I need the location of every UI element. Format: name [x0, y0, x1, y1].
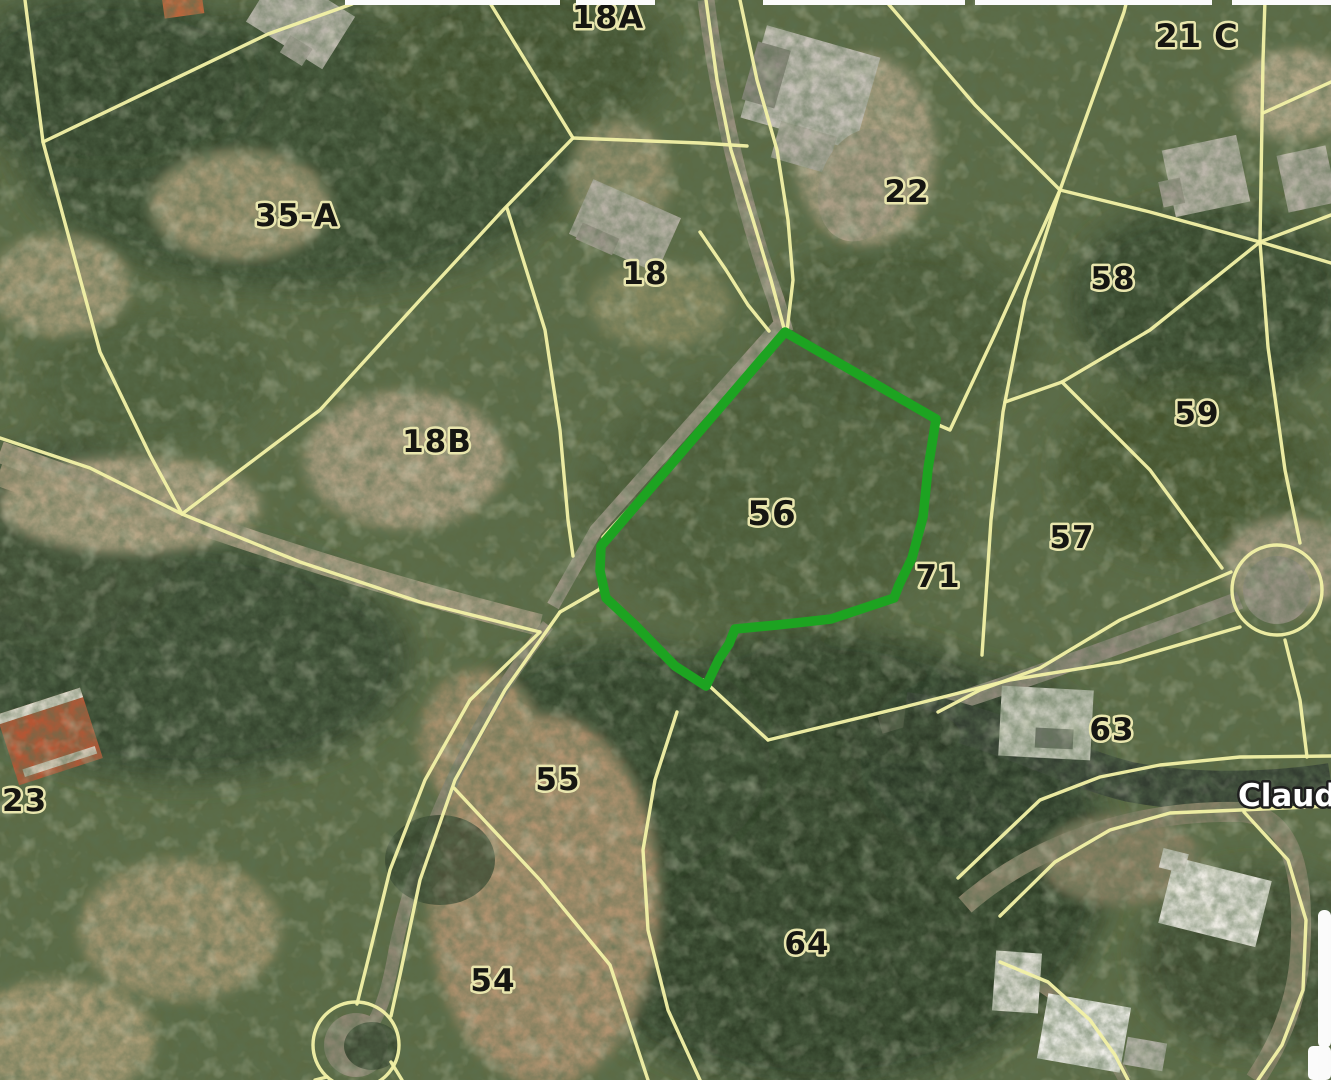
map-viewport[interactable]: 18A21 C35-A22185818B595657716323555464Cl…: [0, 0, 1331, 1080]
aerial-map-canvas[interactable]: 18A21 C35-A22185818B595657716323555464Cl…: [0, 0, 1331, 1080]
cropped-top-bar-segment: [763, 0, 965, 5]
parcel-label-21C: 21 C: [1155, 17, 1238, 55]
parcel-label-18A: 18A: [572, 0, 644, 36]
scrollbar-thumb[interactable]: [1318, 910, 1331, 1048]
parcel-label-23: 23: [2, 783, 47, 819]
cropped-top-bar-segment: [1232, 0, 1331, 5]
satellite-imagery: [0, 0, 1331, 1080]
street-label-Claud: Claud: [1238, 778, 1331, 814]
parcel-label-18: 18: [622, 256, 667, 292]
cropped-top-bar-segment: [345, 0, 560, 5]
parcel-label-55: 55: [535, 762, 580, 798]
parcel-label-64: 64: [784, 926, 829, 962]
parcel-label-57: 57: [1049, 520, 1094, 556]
parcel-label-59: 59: [1174, 396, 1219, 432]
parcel-label-71: 71: [915, 559, 960, 595]
parcel-label-63: 63: [1089, 712, 1134, 748]
parcel-label-56: 56: [747, 494, 796, 534]
parcel-label-22: 22: [884, 174, 929, 210]
parcel-label-35-A: 35-A: [255, 198, 339, 234]
cropped-top-bar-segment: [975, 0, 1212, 5]
cropped-top-bar-segment: [576, 0, 655, 5]
parcel-label-58: 58: [1090, 261, 1135, 297]
parcel-label-54: 54: [470, 963, 515, 999]
corner-ui-panel[interactable]: [1308, 1046, 1331, 1080]
parcel-label-18B: 18B: [402, 424, 472, 460]
